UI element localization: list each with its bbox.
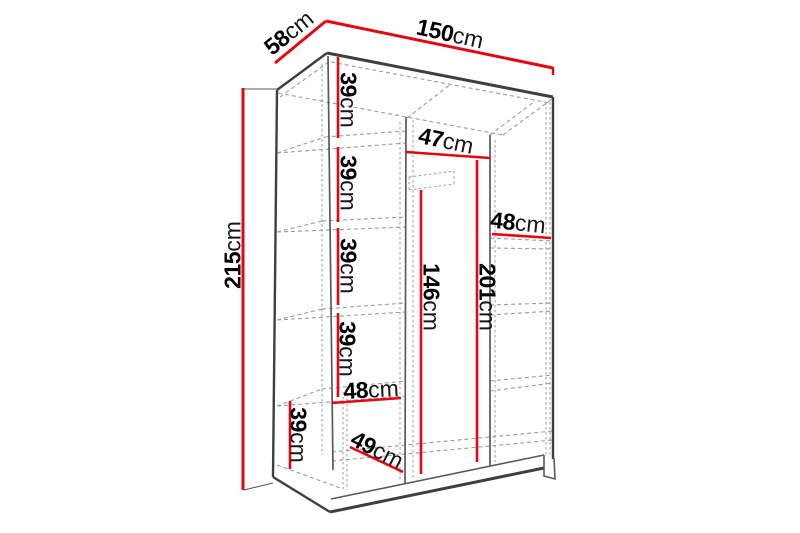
ceiling-hidden-edges: [278, 61, 552, 135]
hanging-rail-hidden: [409, 171, 454, 190]
dimension-label-height: 215cm: [222, 221, 245, 289]
dimension-label-left-width: 48cm: [343, 377, 400, 403]
dimension-label-shelf-gap-2: 39cm: [337, 155, 360, 210]
partition-left: [405, 117, 406, 484]
dimension-value: 39: [336, 72, 362, 97]
interior-back-left-edge: [328, 56, 333, 470]
dimension-value: 39: [336, 155, 362, 180]
bottom-left-edge: [273, 477, 330, 512]
floor-hidden-edges: [277, 431, 553, 489]
dimension-value: 39: [335, 321, 361, 346]
dimension-unit: cm: [336, 97, 362, 128]
dimension-label-shelf-gap-1: 39cm: [337, 72, 360, 127]
dimension-unit: cm: [367, 375, 399, 403]
dimension-unit: cm: [286, 432, 312, 463]
dimension-unit: cm: [336, 180, 362, 211]
right-foot: [544, 455, 555, 479]
dimension-unit: cm: [335, 346, 361, 377]
wardrobe-dimension-diagram: 58cm 150cm 215cm 39cm 39cm 39cm 39cm 47c…: [0, 0, 800, 533]
dimension-value: 48: [343, 377, 369, 404]
floor-front-edge: [331, 455, 544, 499]
dimension-value: 215: [220, 252, 246, 289]
dimension-value: 48: [489, 207, 516, 235]
dimension-value: 146: [419, 263, 445, 300]
dimension-unit: cm: [419, 300, 445, 331]
front-left-edge: [273, 90, 277, 477]
dimension-unit: cm: [514, 209, 547, 238]
plinth-bottom-edge: [330, 468, 544, 512]
wardrobe-outline: [273, 53, 555, 512]
dimension-label-right-height: 201cm: [476, 263, 499, 331]
dimension-unit: cm: [220, 221, 246, 252]
dimension-label-bottom-gap: 39cm: [287, 407, 310, 462]
dimension-value: 201: [475, 263, 501, 300]
dimension-label-shelf-gap-4: 39cm: [336, 321, 359, 376]
dimension-label-right-width: 48cm: [489, 209, 547, 238]
dimension-value: 39: [286, 407, 312, 432]
top-left-edge: [277, 53, 327, 90]
dimension-unit: cm: [475, 300, 501, 331]
dimension-unit: cm: [336, 263, 362, 294]
dimension-label-shelf-gap-3: 39cm: [337, 238, 360, 293]
dimension-value: 39: [336, 238, 362, 263]
dimension-label-hanging-height: 146cm: [420, 263, 443, 331]
witness-lines: [244, 89, 277, 490]
